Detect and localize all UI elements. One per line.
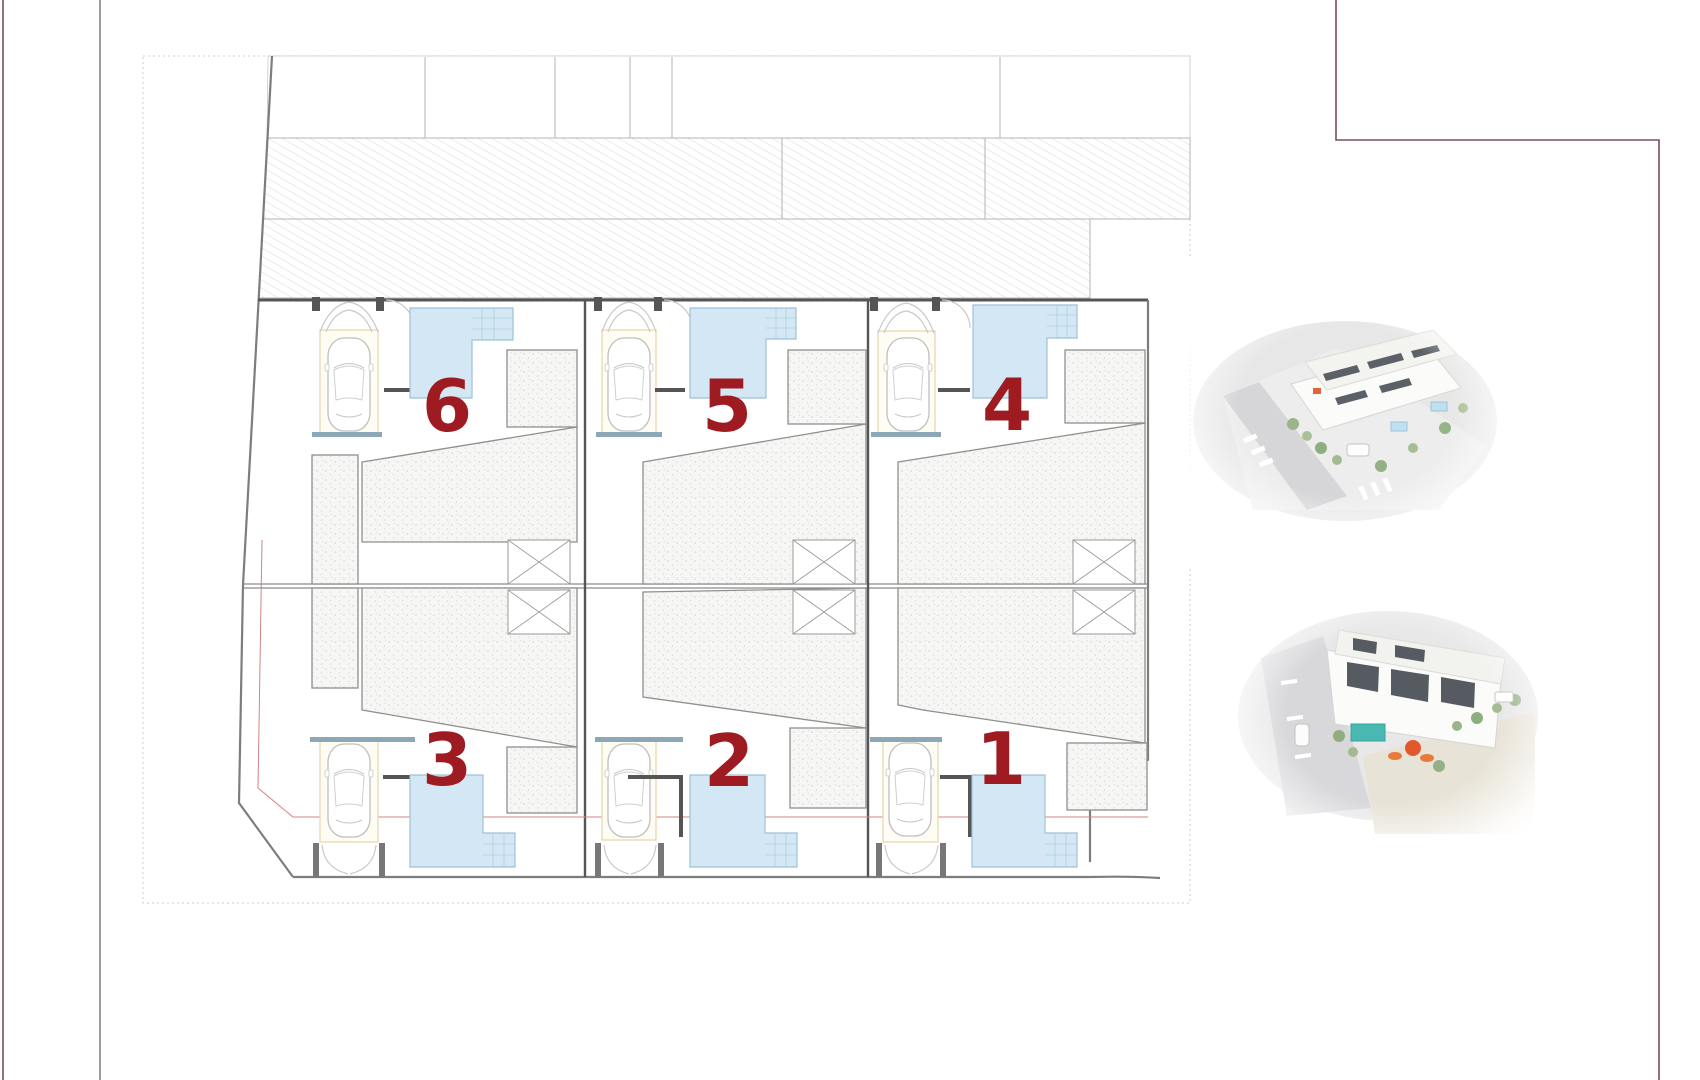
car-top-view-icon xyxy=(884,338,932,431)
unit-label-6[interactable]: 6 xyxy=(422,364,472,448)
house-5-wing xyxy=(788,350,866,424)
plot-boundary-street xyxy=(293,877,1160,878)
stair-core-cross-icon xyxy=(793,590,855,634)
render-top xyxy=(1150,256,1540,566)
stair-core-cross-icon xyxy=(793,540,855,584)
hatch-band-2 xyxy=(259,219,1090,298)
car-top-view-icon xyxy=(325,744,373,837)
stair-core-cross-icon xyxy=(508,590,570,634)
neighbour-buildings xyxy=(259,56,1190,298)
house-6-side-strip xyxy=(312,455,358,584)
unit-label-4[interactable]: 4 xyxy=(982,363,1032,447)
unit-label-5[interactable]: 5 xyxy=(702,364,752,448)
stair-core-cross-icon xyxy=(1073,540,1135,584)
house-3-side-strip xyxy=(312,588,358,688)
render-bottom xyxy=(1198,556,1588,876)
unit-label-2[interactable]: 2 xyxy=(704,719,754,803)
car-top-view-icon xyxy=(886,743,934,836)
house-3-wing xyxy=(507,747,577,813)
house-4-wing xyxy=(1065,350,1145,423)
stair-core-cross-icon xyxy=(1073,590,1135,634)
house-6-wing xyxy=(507,350,577,427)
car-top-view-icon xyxy=(325,338,373,431)
house-2-wing xyxy=(790,728,866,808)
house-1-wing xyxy=(1067,743,1147,810)
stair-core-cross-icon xyxy=(508,540,570,584)
site-plan-page: 6 5 4 3 2 1 xyxy=(0,0,1700,1080)
hatch-band-1 xyxy=(263,138,1190,219)
site-plan-drawing: 6 5 4 3 2 1 xyxy=(0,0,1700,1080)
car-top-view-icon xyxy=(605,338,653,431)
unit-label-3[interactable]: 3 xyxy=(422,718,472,802)
garages-bottom-row xyxy=(310,737,972,877)
car-top-view-icon xyxy=(605,744,653,837)
unit-label-1[interactable]: 1 xyxy=(976,717,1026,801)
neighbour-strip xyxy=(267,56,1190,138)
